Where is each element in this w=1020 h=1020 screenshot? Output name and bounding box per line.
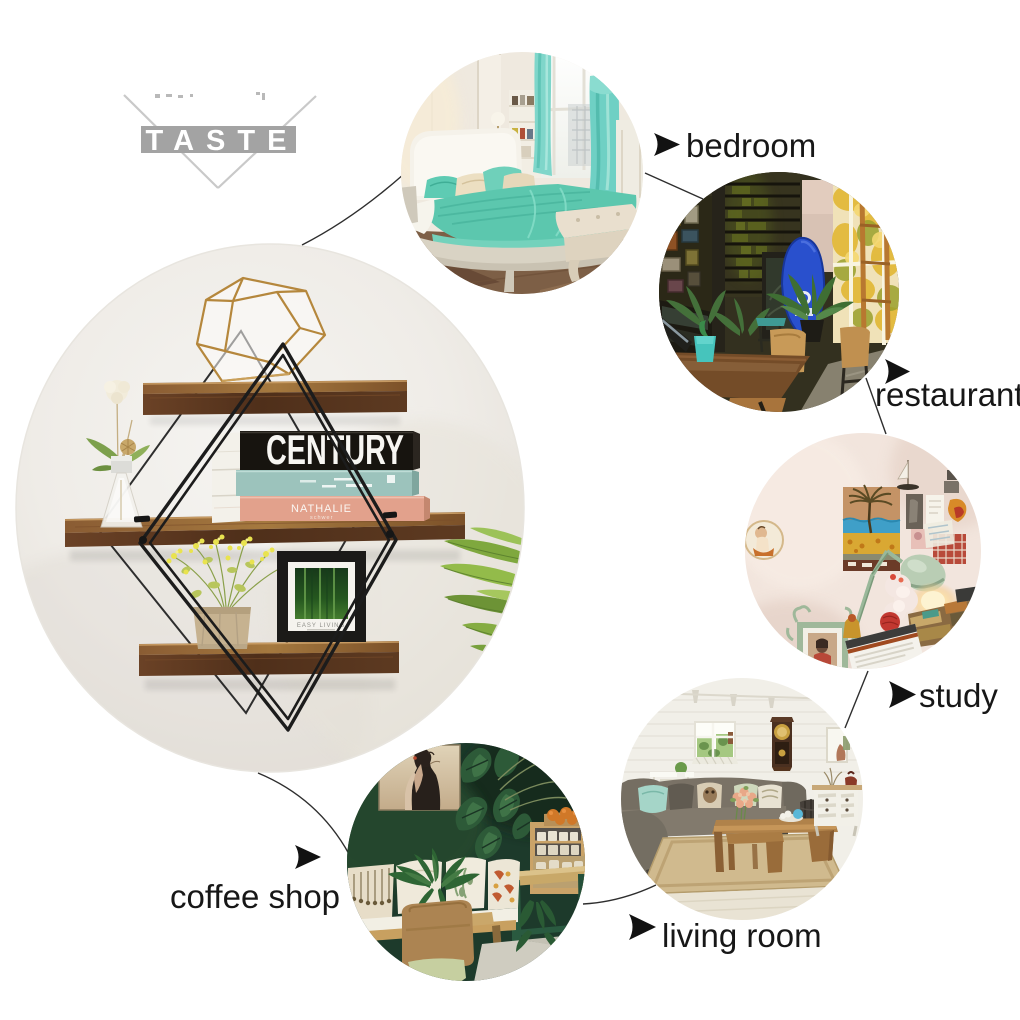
svg-text:TASTE: TASTE xyxy=(146,125,299,157)
svg-text:study: study xyxy=(919,677,998,714)
svg-text:living room: living room xyxy=(662,917,822,954)
svg-text:restaurant: restaurant xyxy=(875,376,1020,413)
svg-text:NATHALIE: NATHALIE xyxy=(291,503,353,515)
svg-text:bedroom: bedroom xyxy=(686,127,816,164)
svg-text:coffee shop: coffee shop xyxy=(170,878,340,915)
svg-text:schwer: schwer xyxy=(310,515,333,521)
